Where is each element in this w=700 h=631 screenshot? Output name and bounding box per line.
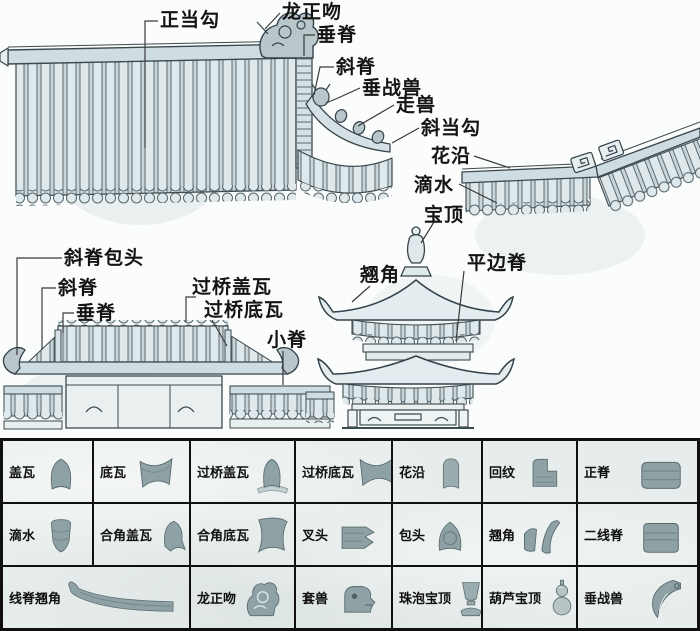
- part-label: 二线脊: [584, 525, 623, 544]
- parts-row-1: 盖瓦 底瓦 过桥盖瓦 过桥底: [3, 441, 697, 504]
- part-cell-hulubaoding: 葫芦宝顶: [483, 567, 578, 628]
- zhupaobaoding-tile-image: [451, 572, 483, 624]
- part-label: 葫芦宝顶: [489, 588, 541, 607]
- main-tile-curtain: [16, 56, 296, 196]
- label-guoqiaodiwa: 过桥底瓦: [204, 301, 284, 320]
- lower-roof: [318, 356, 514, 384]
- part-label: 合角底瓦: [197, 525, 249, 544]
- part-cell-guoqiaogaiwa: 过桥盖瓦: [191, 441, 296, 502]
- roof-parts-diagram: 正当勾 龙正吻 垂脊 斜脊 垂战兽 走兽 斜当勾 花沿 滴水 宝顶 斜脊包头 斜…: [0, 0, 700, 631]
- zhengji-tile-image: [635, 447, 687, 497]
- part-cell-chatou: 叉头: [296, 504, 393, 565]
- part-cell-erxianji: 二线脊: [578, 504, 697, 565]
- xianjiqiaojiao-tile-image: [61, 573, 179, 623]
- label-xiaoji: 小脊: [267, 331, 307, 350]
- part-label: 正脊: [584, 462, 610, 481]
- part-cell-taoshou: 套兽: [296, 567, 393, 628]
- label-pingbianji: 平边脊: [467, 254, 527, 273]
- part-label: 叉头: [302, 525, 328, 544]
- part-cell-gaiwa: 盖瓦: [3, 441, 94, 502]
- part-label: 龙正吻: [197, 588, 236, 607]
- part-cell-qiaojiao: 翘角: [483, 504, 578, 565]
- longzhengwen-tile-image: [238, 572, 284, 624]
- huayan-tile-image: [431, 446, 471, 498]
- part-label: 底瓦: [100, 462, 126, 481]
- hulubaoding-tile-image: [541, 572, 578, 624]
- part-cell-huayan: 花沿: [393, 441, 483, 502]
- part-cell-huiwen: 回纹: [483, 441, 578, 502]
- pavilion-base: [342, 410, 474, 428]
- label-baoding: 宝顶: [424, 206, 464, 225]
- part-label: 垂战兽: [584, 588, 623, 607]
- coping-tiles: [58, 326, 228, 362]
- label-xieji-top: 斜脊: [336, 58, 376, 77]
- label-xiejibaotou: 斜脊包头: [64, 249, 144, 268]
- part-label: 线脊翘角: [9, 588, 61, 607]
- part-label: 套兽: [302, 588, 328, 607]
- part-label: 合角盖瓦: [100, 525, 152, 544]
- label-huayan: 花沿: [431, 147, 471, 166]
- dishui-tile-image: [40, 509, 82, 561]
- baotou-tile-image: [429, 509, 471, 561]
- part-label: 盖瓦: [9, 462, 35, 481]
- hejiaogaiwa-tile-image: [152, 509, 191, 561]
- chuizhanshou-tile-image: [639, 572, 687, 624]
- label-xiedanggou: 斜当勾: [421, 119, 481, 138]
- label-chuiji-top: 垂脊: [317, 26, 357, 45]
- guoqiaogaiwa-tile-image: [249, 446, 293, 498]
- qiaojiao-tile-image: [518, 510, 566, 560]
- parts-table: 盖瓦 底瓦 过桥盖瓦 过桥底: [0, 438, 700, 631]
- label-qiaojiao: 翘角: [360, 266, 400, 285]
- label-xieji-wall: 斜脊: [58, 279, 98, 298]
- part-cell-xianjiqiaojiao: 线脊翘角: [3, 567, 191, 628]
- chatou-tile-image: [335, 510, 381, 560]
- parts-row-3: 线脊翘角 龙正吻 套兽: [3, 567, 697, 628]
- label-chuiji-wall: 垂脊: [76, 304, 116, 323]
- part-cell-chuizhanshou: 垂战兽: [578, 567, 697, 628]
- part-cell-hejiaogaiwa: 合角盖瓦: [94, 504, 191, 565]
- label-zhengdanggou: 正当勾: [160, 11, 220, 30]
- architrave: [363, 344, 473, 352]
- part-cell-zhengji: 正脊: [578, 441, 697, 502]
- sloped-eave-drawing: [462, 122, 700, 217]
- part-label: 翘角: [489, 525, 515, 544]
- wall-body-center: [66, 376, 222, 428]
- part-cell-longzhengwen: 龙正吻: [191, 567, 296, 628]
- part-label: 回纹: [489, 462, 515, 481]
- guoqiaodiwa-tile-image: [354, 447, 393, 497]
- pavilion-left-wall: [306, 392, 334, 423]
- part-label: 滴水: [9, 525, 35, 544]
- label-guoqiaogaiwa: 过桥盖瓦: [192, 278, 272, 297]
- part-label: 珠泡宝顶: [399, 588, 451, 607]
- hejiaodiwa-tile-image: [249, 509, 295, 561]
- part-label: 包头: [399, 525, 425, 544]
- diwa-tile-image: [133, 447, 179, 497]
- label-dishui: 滴水: [414, 176, 454, 195]
- gaiwa-tile-image: [40, 446, 82, 498]
- part-cell-diwa: 底瓦: [94, 441, 191, 502]
- part-cell-guoqiaodiwa: 过桥底瓦: [296, 441, 393, 502]
- part-cell-zhupaobaoding: 珠泡宝顶: [393, 567, 483, 628]
- part-label: 花沿: [399, 462, 425, 481]
- part-cell-baotou: 包头: [393, 504, 483, 565]
- part-label: 过桥底瓦: [302, 462, 354, 481]
- taoshou-tile-image: [335, 573, 381, 623]
- parts-row-2: 滴水 合角盖瓦 合角底瓦 叉头: [3, 504, 697, 567]
- label-zoushou: 走兽: [396, 96, 436, 115]
- wall-ridge-band: [14, 362, 288, 374]
- part-label: 过桥盖瓦: [197, 462, 249, 481]
- huiwen-tile-image: [522, 447, 566, 497]
- lower-wall-left: [4, 386, 62, 429]
- part-cell-hejiaodiwa: 合角底瓦: [191, 504, 296, 565]
- erxianji-tile-image: [635, 510, 687, 560]
- part-cell-dishui: 滴水: [3, 504, 94, 565]
- label-longzhengwen: 龙正吻: [282, 3, 342, 22]
